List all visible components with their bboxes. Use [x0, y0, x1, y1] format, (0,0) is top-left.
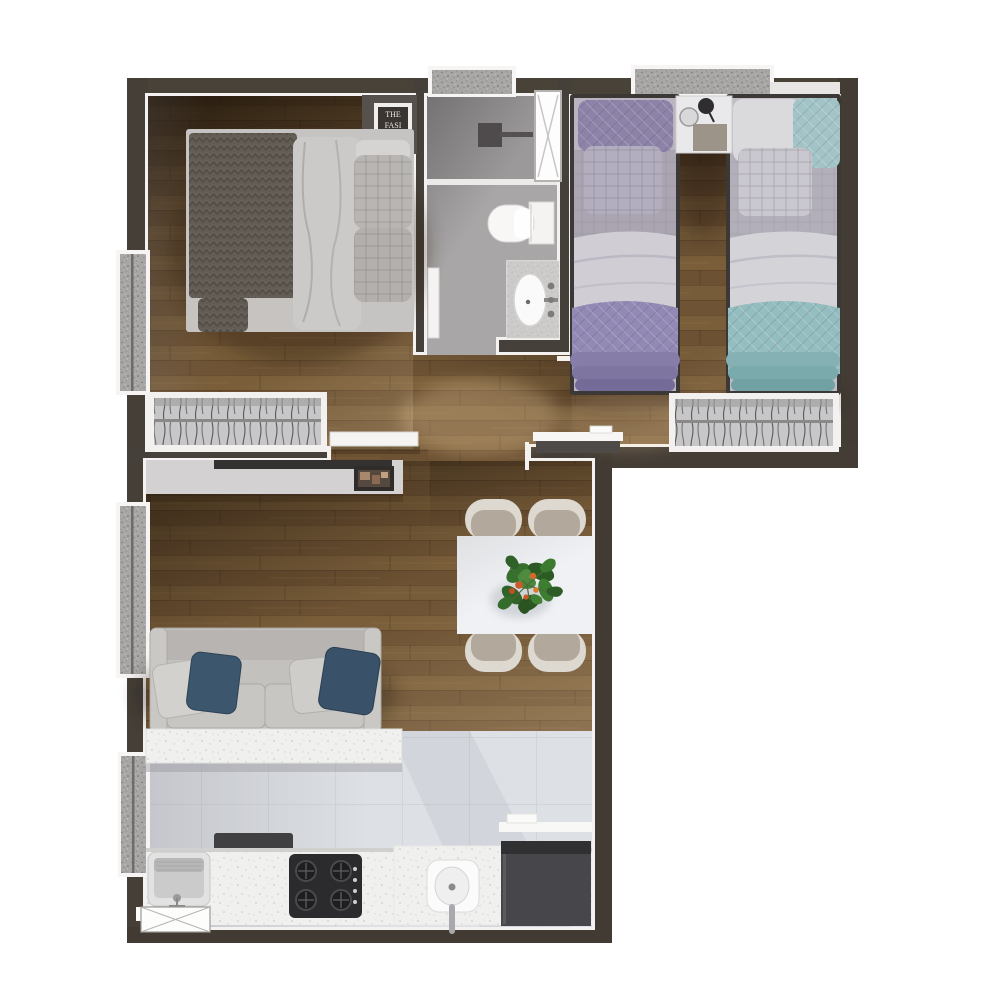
svg-text:FASI: FASI — [385, 121, 402, 130]
svg-text:THE: THE — [385, 110, 401, 119]
